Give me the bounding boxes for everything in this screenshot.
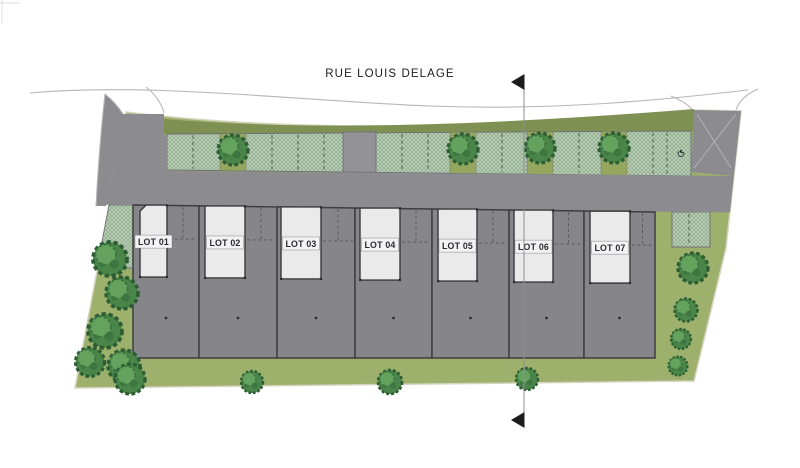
fence-post-dot — [552, 209, 554, 211]
fence-post-dot — [166, 204, 168, 206]
tree-icon — [93, 242, 127, 276]
tree-icon — [378, 370, 402, 394]
fence-post-dot — [244, 277, 246, 279]
tree-icon — [106, 277, 138, 309]
fence-post-dot — [320, 278, 322, 280]
site-plan-page: LOT 01LOT 02LOT 03LOT 04LOT 05LOT 06LOT … — [0, 0, 800, 468]
garden-marker-dot — [545, 317, 548, 320]
fence-post-dot — [166, 276, 168, 278]
tree-icon — [241, 371, 263, 393]
fence-post-dot — [204, 277, 206, 279]
tree-icon — [516, 368, 538, 390]
lot-label: LOT 04 — [364, 240, 395, 250]
tree-icon — [218, 135, 248, 165]
fence-post-dot — [476, 280, 478, 282]
tree-icon — [448, 134, 478, 164]
fence-post-dot — [399, 207, 401, 209]
fence-post-dot — [476, 208, 478, 210]
lot-label: LOT 06 — [518, 242, 549, 252]
lot-label: LOT 03 — [285, 239, 316, 249]
right-access-pavement — [691, 110, 741, 176]
site-plan-drawing: LOT 01LOT 02LOT 03LOT 04LOT 05LOT 06LOT … — [0, 0, 800, 468]
tree-icon — [678, 253, 708, 283]
garden-marker-dot — [392, 317, 395, 320]
tree-icon — [599, 133, 629, 163]
tree-icon — [671, 329, 691, 349]
fence-post-dot — [629, 282, 631, 284]
lot-label: LOT 07 — [594, 243, 625, 253]
fence-post-dot — [280, 278, 282, 280]
lots-group: LOT 01LOT 02LOT 03LOT 04LOT 05LOT 06LOT … — [133, 204, 655, 358]
tree-icon — [675, 299, 698, 322]
tree-icon — [525, 133, 555, 163]
fence-post-dot — [359, 279, 361, 281]
fence-post-dot — [589, 282, 591, 284]
garden-marker-dot — [237, 317, 240, 320]
garden-marker-dot — [315, 317, 318, 320]
fence-post-dot — [552, 281, 554, 283]
fence-post-dot — [399, 279, 401, 281]
garden-marker-dot — [165, 317, 168, 320]
tree-icon — [115, 364, 145, 394]
walkway-block — [343, 132, 376, 173]
fence-post-dot — [437, 280, 439, 282]
tree-icon — [76, 348, 105, 377]
street-name-label: RUE LOUIS DELAGE — [325, 68, 454, 80]
fence-post-dot — [629, 210, 631, 212]
fence-post-dot — [513, 281, 515, 283]
lot-label: LOT 05 — [442, 241, 473, 251]
lot-label: LOT 02 — [209, 238, 240, 248]
garden-marker-dot — [469, 317, 472, 320]
fence-post-dot — [139, 276, 141, 278]
fence-post-dot — [244, 205, 246, 207]
lot-label: LOT 01 — [138, 237, 169, 247]
tree-icon — [669, 357, 688, 376]
tree-icon — [88, 314, 122, 348]
hatch-patch-right — [672, 212, 710, 247]
fence-post-dot — [320, 206, 322, 208]
garden-marker-dot — [618, 317, 621, 320]
